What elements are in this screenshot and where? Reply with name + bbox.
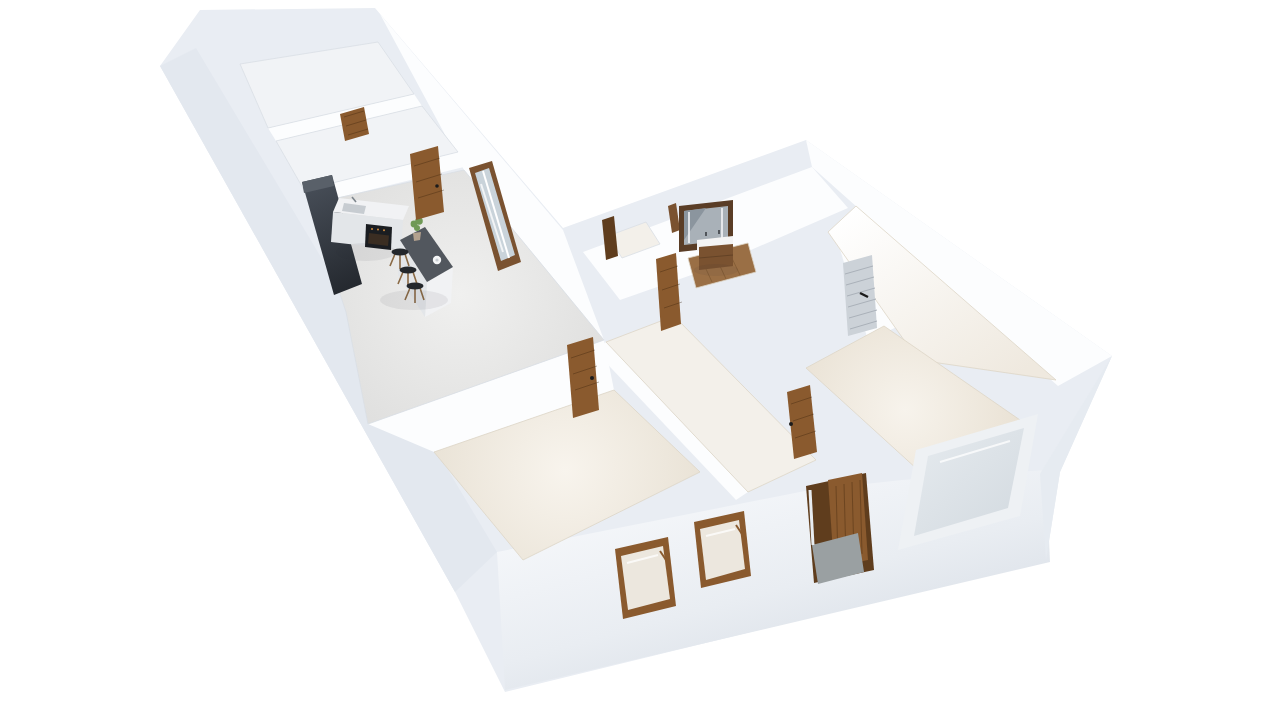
kitchen-hall-door <box>410 146 444 220</box>
street-window-1 <box>615 537 676 619</box>
floor-plan-3d-view <box>0 0 1280 720</box>
kettle <box>433 256 441 264</box>
kitchen-counter <box>331 197 409 250</box>
slatted-closet-door <box>843 255 877 336</box>
front-entrance-door <box>806 473 874 584</box>
floor-plan-canvas <box>0 0 1280 720</box>
street-window-2 <box>694 511 751 588</box>
